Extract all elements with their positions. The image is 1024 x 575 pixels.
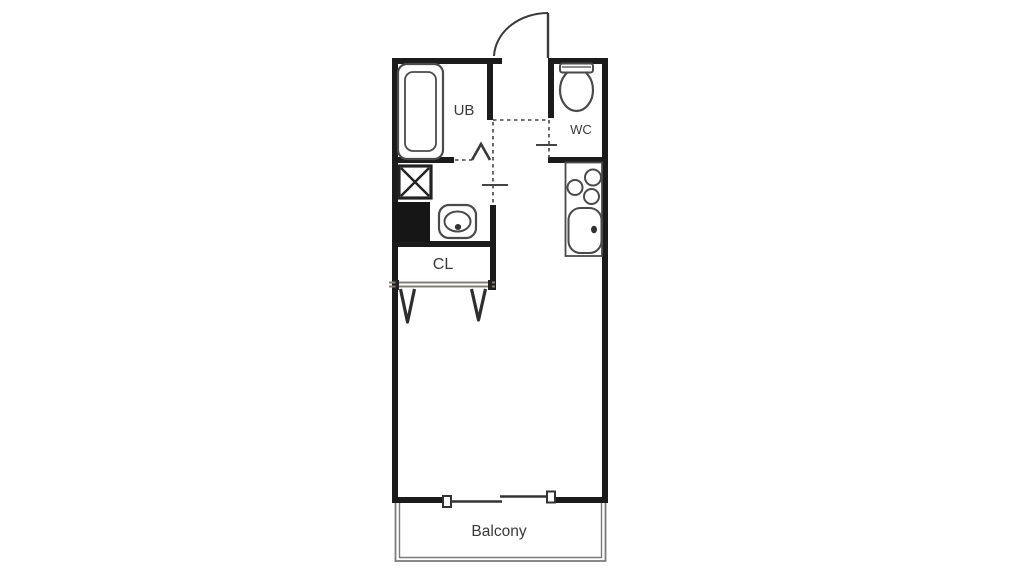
washing-machine-pan — [399, 166, 431, 198]
kitchen-faucet-dot — [591, 226, 597, 234]
door-swing-arc-icon — [494, 13, 548, 56]
unit-bath-label: UB — [454, 102, 475, 119]
balcony-label: Balcony — [471, 523, 526, 540]
toilet-bowl-icon — [560, 69, 593, 111]
closet-rail-end-cap — [488, 280, 492, 290]
bathtub-inner-icon — [405, 72, 436, 151]
closet-label: CL — [433, 256, 454, 273]
toilet-room: WC — [560, 64, 593, 138]
dashed-partitions — [455, 120, 557, 203]
bath-folding-door-icon — [472, 144, 490, 160]
closet-door-swing-icon — [472, 289, 486, 320]
toilet-tank-icon — [560, 64, 593, 73]
unit-bath-room: UB — [398, 64, 490, 160]
entrance-door — [494, 13, 548, 58]
toilet-label: WC — [570, 122, 592, 137]
floor-plan-page: UB WC — [0, 0, 1024, 575]
stove-burner-icon — [585, 170, 601, 186]
closet: CL — [389, 256, 495, 322]
closet-rail-end-cap — [396, 280, 400, 290]
washbasin — [439, 205, 476, 238]
washbasin-drain-dot — [455, 224, 461, 230]
kitchen-unit — [566, 163, 603, 257]
window-frame-cap-right — [547, 492, 555, 503]
sliding-window — [443, 492, 555, 508]
pipe-space-block — [393, 202, 430, 242]
floor-plan-drawing: UB WC — [0, 0, 1024, 575]
stove-burner-icon — [584, 189, 599, 204]
balcony: Balcony — [396, 503, 606, 561]
closet-door-swing-icon — [401, 289, 415, 322]
stove-burner-icon — [568, 180, 583, 195]
window-frame-cap-left — [443, 496, 451, 507]
